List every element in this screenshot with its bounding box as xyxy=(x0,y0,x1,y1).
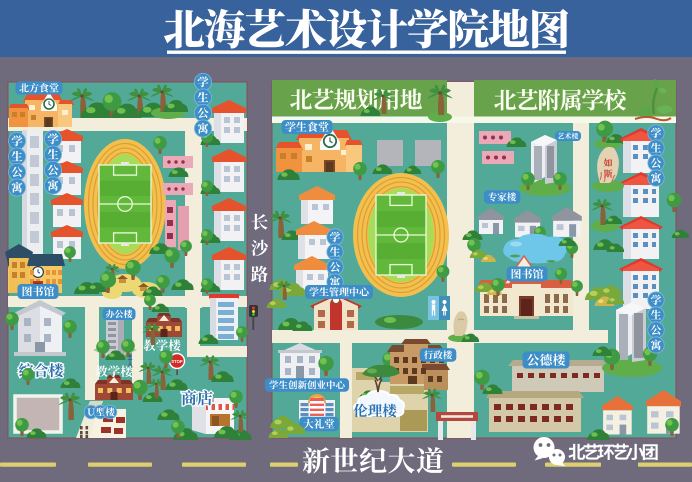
svg-text:STOP: STOP xyxy=(171,359,183,364)
